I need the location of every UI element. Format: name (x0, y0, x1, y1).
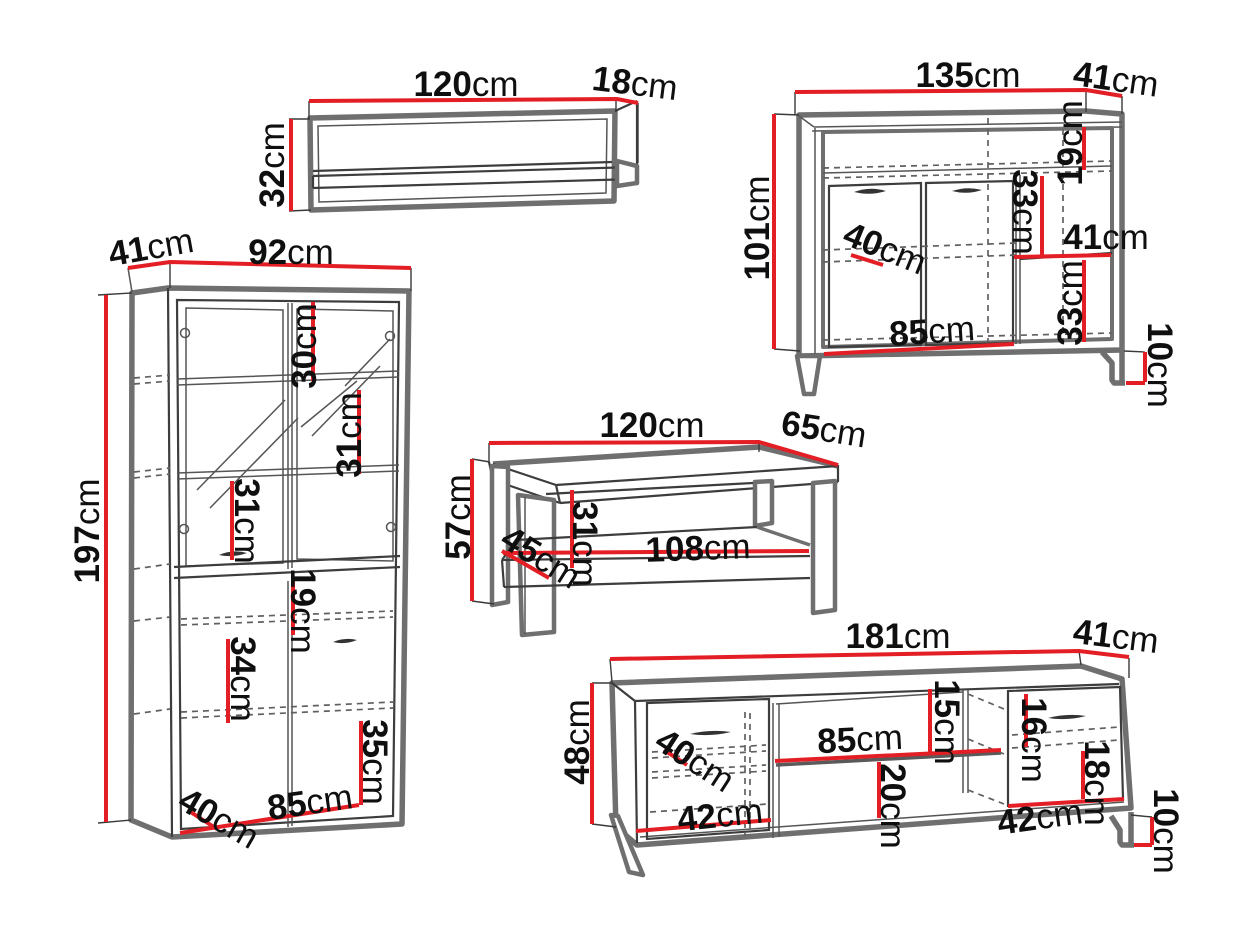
svg-text:92cm: 92cm (248, 233, 334, 272)
svg-text:120cm: 120cm (599, 406, 704, 445)
svg-text:19cm: 19cm (1051, 100, 1090, 186)
svg-text:34cm: 34cm (223, 636, 262, 722)
svg-text:135cm: 135cm (915, 56, 1020, 95)
svg-text:30cm: 30cm (285, 303, 324, 389)
svg-text:10cm: 10cm (1140, 322, 1179, 408)
svg-text:101cm: 101cm (738, 175, 777, 280)
svg-text:85cm: 85cm (816, 718, 904, 761)
svg-text:31cm: 31cm (227, 478, 266, 564)
svg-text:33cm: 33cm (1005, 169, 1044, 255)
svg-text:18cm: 18cm (1077, 740, 1116, 826)
svg-text:10cm: 10cm (1146, 788, 1185, 874)
svg-text:35cm: 35cm (355, 719, 394, 805)
svg-text:85cm: 85cm (888, 309, 976, 354)
svg-text:20cm: 20cm (873, 763, 912, 849)
svg-text:33cm: 33cm (1051, 260, 1090, 346)
svg-text:41cm: 41cm (1063, 218, 1149, 257)
svg-text:31cm: 31cm (330, 392, 369, 478)
svg-text:48cm: 48cm (558, 699, 597, 785)
svg-text:15cm: 15cm (927, 679, 966, 765)
svg-text:32cm: 32cm (253, 122, 292, 208)
svg-text:16cm: 16cm (1014, 697, 1053, 783)
svg-text:197cm: 197cm (68, 478, 107, 583)
svg-text:19cm: 19cm (283, 568, 322, 654)
svg-text:120cm: 120cm (413, 65, 518, 104)
svg-text:57cm: 57cm (439, 474, 478, 560)
svg-text:108cm: 108cm (645, 527, 751, 570)
svg-text:181cm: 181cm (845, 617, 950, 656)
